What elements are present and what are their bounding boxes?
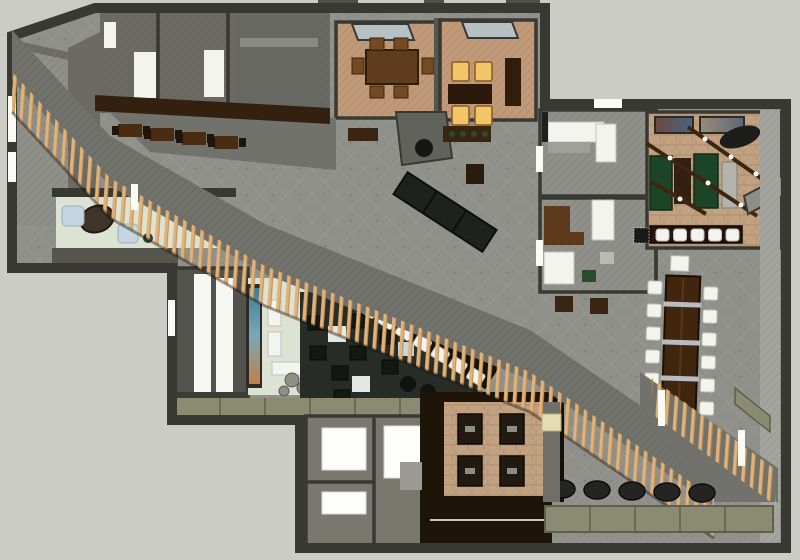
stair-steps [400,462,422,490]
rock [279,386,289,396]
wall-art [655,117,693,133]
window-panel [104,22,116,48]
chair [700,402,714,415]
chair [701,356,715,369]
floor-light [216,278,233,396]
daybed [592,200,614,240]
chair [646,327,660,340]
glow-chair [475,106,492,125]
bar-stool [656,229,669,241]
booth [500,414,524,444]
window-sliver [8,152,16,182]
chair [703,310,717,323]
tv-panel [542,112,548,142]
chair [645,350,659,363]
ottoman [689,484,715,502]
window-sliver [168,300,175,336]
cube-table [352,376,370,392]
pass-counter [348,128,378,141]
service-table [466,164,484,184]
billiards-bar [634,112,782,248]
restroom-fixture [322,428,366,470]
skylight-glass [462,22,518,38]
private-dining-1 [336,22,436,118]
sofa [544,252,574,284]
lobby-chair [62,206,84,226]
chair [702,333,716,346]
bar-stool [674,229,687,241]
door-gap [536,146,543,172]
dining-table [366,50,418,84]
bar-shelf [634,228,649,243]
glow-chair [452,62,469,81]
side-table [600,252,614,264]
bench [548,142,590,153]
lounge-chair [350,346,366,360]
floor-light [194,274,211,396]
dark-dining-table [448,84,492,104]
bar-stool-row [656,229,739,241]
cabinet [505,58,521,106]
gallery-bench [272,362,302,375]
bar-stool [691,229,704,241]
booth [458,456,482,486]
boh-counter [240,38,318,47]
chair [647,304,661,317]
host-podium [671,256,690,272]
chair [700,379,714,392]
booth [458,414,482,444]
window-panel [134,52,156,98]
rock [285,373,299,387]
ottoman [654,483,680,501]
office-2 [540,198,656,292]
gallery-bench [268,332,281,356]
lounge-chair [310,346,326,360]
door-gap [536,240,543,266]
booth [500,456,524,486]
accent-chair [582,270,596,282]
desk-return [544,232,584,245]
column-capital [542,414,561,431]
lit-post [131,184,138,210]
lit-door-gap [658,390,665,426]
ottoman [619,482,645,500]
round-table [415,139,433,157]
lit-door-gap [738,430,745,466]
bar-stool [726,229,739,241]
office-1 [540,110,656,196]
chair [648,281,662,294]
bar-stool [709,229,722,241]
glow-chair [452,106,469,125]
desk [544,206,570,236]
ottoman [584,481,610,499]
pouf [400,376,416,392]
lounge-chair [332,366,348,380]
restroom-fixture [322,492,366,514]
door-gap [594,99,622,108]
chair [704,287,718,300]
glow-chair [475,62,492,81]
sofa [596,124,616,162]
floorplan-render-canvas [0,0,800,560]
private-dining-2 [440,20,536,125]
lounge-chair [382,360,398,374]
window-panel [204,50,224,97]
